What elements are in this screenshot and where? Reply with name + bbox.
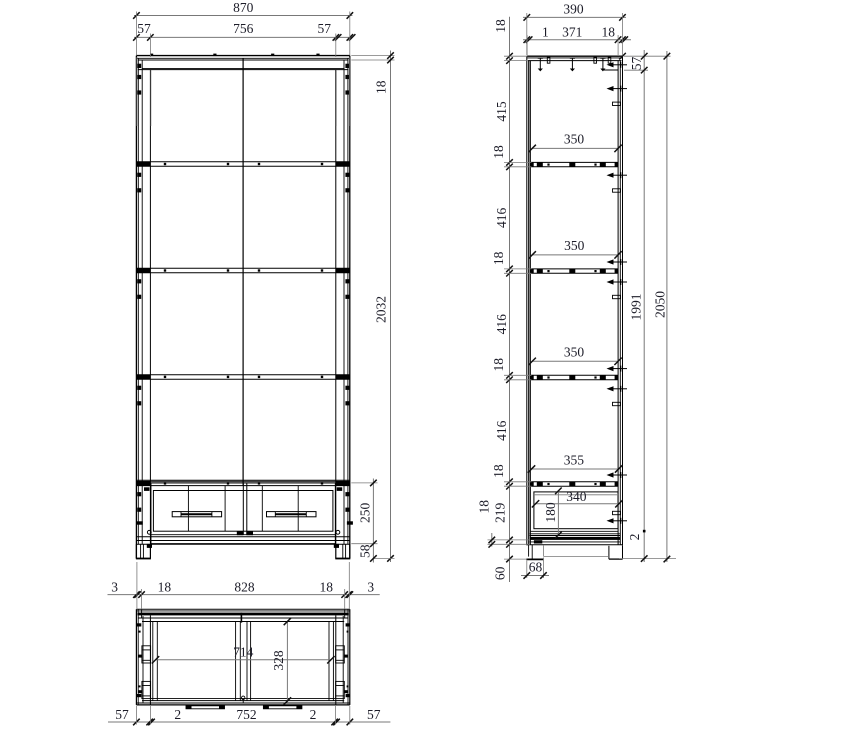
svg-text:18: 18: [491, 145, 506, 159]
svg-text:3: 3: [367, 580, 374, 595]
svg-text:18: 18: [601, 24, 615, 39]
svg-text:340: 340: [566, 489, 587, 504]
svg-text:2: 2: [174, 707, 181, 722]
svg-text:18: 18: [493, 19, 508, 33]
svg-text:1991: 1991: [629, 294, 644, 321]
svg-text:18: 18: [476, 500, 491, 514]
svg-text:2: 2: [627, 534, 642, 541]
svg-text:350: 350: [564, 344, 585, 359]
svg-text:60: 60: [493, 566, 508, 580]
svg-text:828: 828: [234, 580, 255, 595]
svg-text:180: 180: [543, 502, 558, 523]
svg-text:415: 415: [494, 101, 509, 122]
svg-text:371: 371: [562, 24, 582, 39]
svg-text:756: 756: [233, 21, 254, 36]
svg-text:18: 18: [374, 80, 389, 94]
svg-text:250: 250: [357, 503, 372, 524]
svg-text:18: 18: [491, 251, 506, 265]
svg-text:219: 219: [493, 503, 508, 524]
svg-text:752: 752: [236, 707, 256, 722]
svg-text:2032: 2032: [374, 296, 389, 323]
svg-text:2: 2: [310, 707, 317, 722]
svg-text:350: 350: [564, 131, 585, 146]
svg-text:416: 416: [494, 314, 509, 335]
svg-text:390: 390: [563, 2, 584, 17]
svg-text:57: 57: [629, 57, 644, 71]
svg-text:1: 1: [542, 24, 549, 39]
svg-text:3: 3: [111, 580, 118, 595]
svg-text:18: 18: [491, 358, 506, 372]
svg-text:416: 416: [494, 208, 509, 229]
svg-text:57: 57: [367, 707, 381, 722]
svg-text:18: 18: [158, 580, 172, 595]
svg-text:870: 870: [233, 0, 254, 15]
svg-text:2050: 2050: [653, 291, 668, 318]
svg-text:416: 416: [494, 420, 509, 441]
svg-text:18: 18: [320, 580, 334, 595]
svg-text:58: 58: [357, 544, 372, 558]
svg-text:57: 57: [115, 707, 129, 722]
svg-text:350: 350: [564, 238, 585, 253]
svg-text:57: 57: [318, 21, 332, 36]
svg-text:714: 714: [233, 645, 254, 660]
svg-text:355: 355: [564, 452, 585, 467]
svg-text:68: 68: [529, 560, 543, 575]
svg-text:328: 328: [271, 650, 286, 671]
svg-text:18: 18: [491, 464, 506, 478]
